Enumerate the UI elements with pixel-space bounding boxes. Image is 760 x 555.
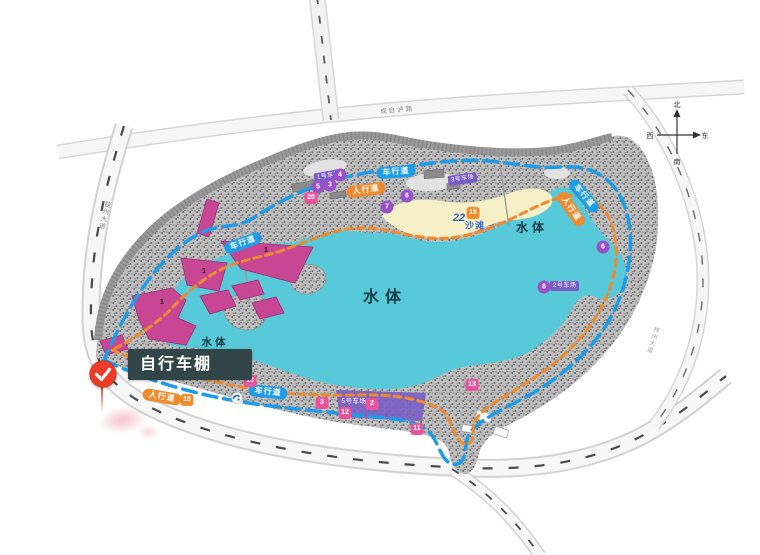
building-number: 1 bbox=[202, 268, 206, 275]
poi-badge: 7 bbox=[381, 201, 394, 214]
site-badge: 12 bbox=[339, 407, 352, 419]
beach-number: 22 bbox=[453, 212, 465, 224]
building-number: 1 bbox=[264, 247, 268, 254]
site-badge: 11 bbox=[411, 423, 424, 435]
site-badge-orange: 15 bbox=[467, 207, 480, 219]
compass-north-label: 北 bbox=[674, 101, 681, 109]
site-badge: 20 bbox=[305, 192, 318, 204]
water-label-center: 水体 bbox=[363, 283, 407, 307]
site-badge-orange: 15 bbox=[181, 394, 194, 406]
poi-badge: 4 bbox=[334, 169, 347, 182]
building-number: 1 bbox=[160, 299, 164, 306]
pin-stem bbox=[101, 387, 103, 413]
site-plan-viewer: 成自泸路 益州大道 梓州大道 水体 水体 水体 沙滩 22 车行道 车行道 车行… bbox=[0, 0, 760, 555]
watermark-scribble bbox=[136, 424, 160, 440]
compass-east-label: 东 bbox=[702, 131, 709, 140]
beach-label: 沙滩 bbox=[465, 219, 485, 232]
compass-rose-icon: 北 南 西 东 bbox=[645, 100, 709, 166]
water-label-east: 水体 bbox=[516, 219, 548, 236]
site-badge: 13 bbox=[466, 379, 479, 391]
compass-south-label: 南 bbox=[674, 157, 681, 166]
poi-badge: 8 bbox=[538, 281, 551, 294]
poi-badge: 6 bbox=[597, 241, 610, 254]
circular-emblem-icon bbox=[231, 392, 243, 404]
poi-badge: 3 bbox=[324, 179, 337, 192]
site-badge: 3 bbox=[316, 397, 329, 409]
water-label-west: 水体 bbox=[202, 335, 229, 350]
check-pin-icon[interactable] bbox=[88, 359, 118, 389]
site-badge: 2 bbox=[366, 398, 379, 410]
parking-label-main: 5号车场 bbox=[341, 395, 366, 405]
poi-badge: 6 bbox=[401, 190, 414, 203]
location-callout: 自行车棚 bbox=[128, 349, 252, 380]
site-plan-map[interactable] bbox=[0, 0, 760, 555]
parking-label-east: 2号车场 bbox=[550, 281, 579, 291]
compass-west-label: 西 bbox=[647, 132, 654, 140]
